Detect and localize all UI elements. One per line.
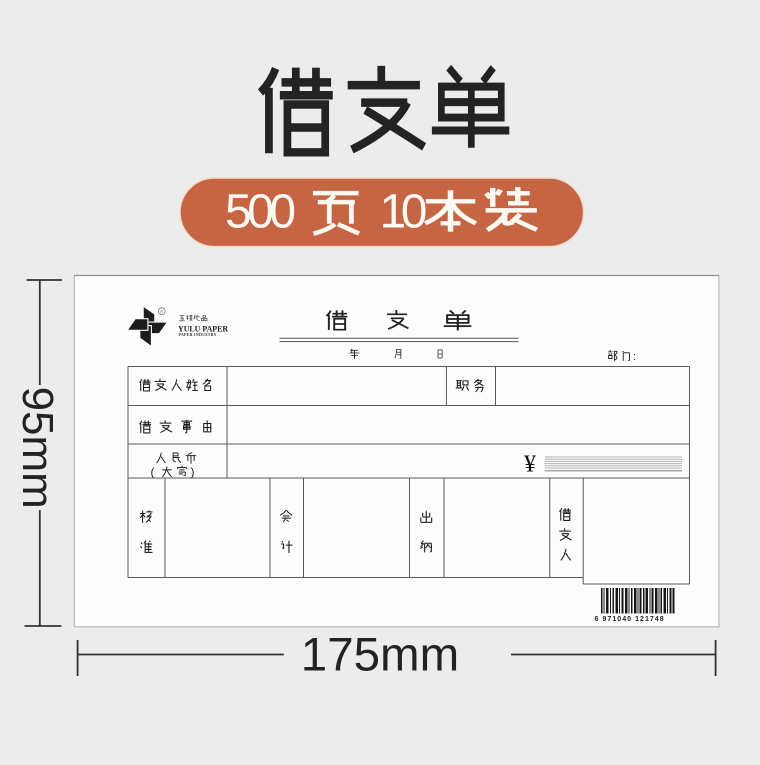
svg-text:6 971040 121748: 6 971040 121748 (595, 616, 665, 623)
svg-text:): ) (191, 465, 195, 479)
svg-text:(: ( (151, 465, 155, 479)
svg-text::: : (633, 351, 636, 363)
svg-text:175mm: 175mm (301, 629, 459, 682)
svg-text:500: 500 (225, 186, 294, 239)
svg-text:10: 10 (380, 186, 426, 239)
svg-text:PAPER INDUSTRY: PAPER INDUSTRY (179, 332, 217, 337)
svg-text:¥: ¥ (524, 452, 536, 478)
svg-text:95mm: 95mm (13, 387, 62, 509)
